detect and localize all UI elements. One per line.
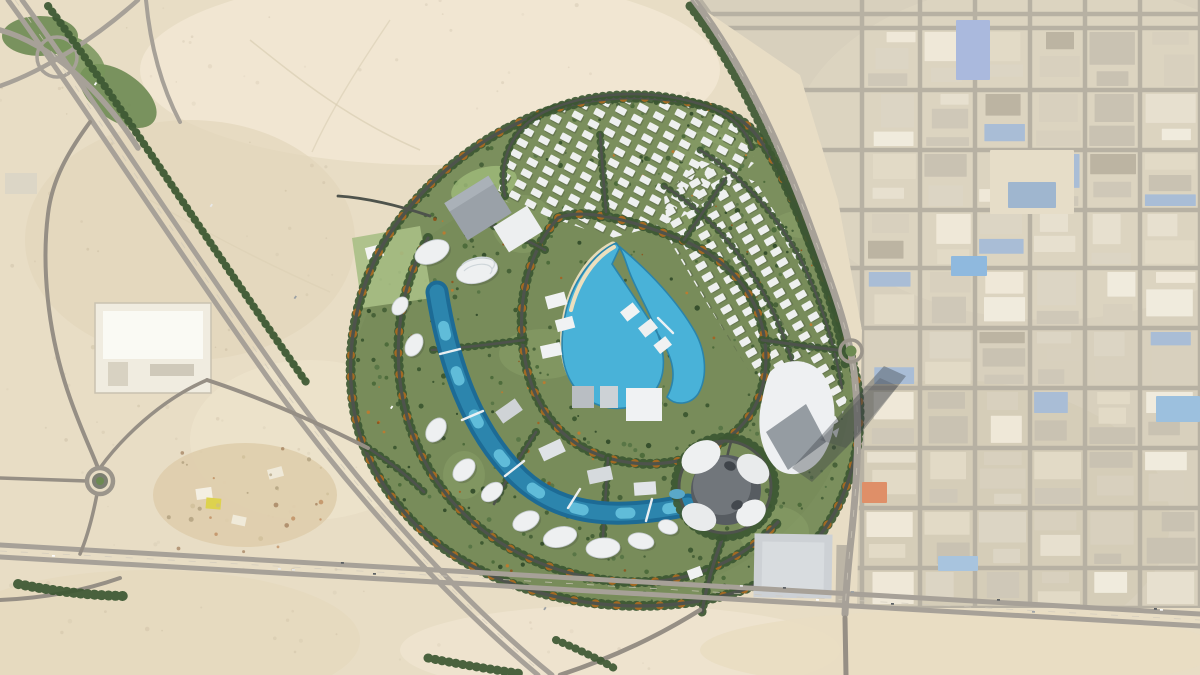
tree (712, 346, 714, 348)
tree (705, 403, 709, 407)
warehouse (1034, 452, 1081, 479)
sand-speck (275, 253, 278, 256)
striped-blue-roof (1008, 182, 1056, 208)
autumn-tree (624, 569, 627, 572)
warehouse (1146, 94, 1196, 123)
tree (385, 376, 389, 380)
debris (319, 518, 321, 520)
tree (488, 354, 491, 357)
tree (486, 146, 490, 150)
warehouse (1107, 272, 1135, 297)
warehouse (1097, 392, 1130, 404)
tree (662, 476, 667, 481)
tree (470, 489, 475, 494)
sand-speck (6, 388, 8, 390)
warehouse (1040, 56, 1080, 77)
tree (468, 507, 471, 510)
tree (622, 442, 627, 447)
tree (691, 430, 695, 434)
debris (167, 515, 171, 519)
debris (269, 473, 272, 476)
plaza-pool (669, 489, 685, 499)
sand-speck (126, 27, 128, 29)
autumn-tree (378, 386, 380, 388)
warehouse (873, 188, 904, 199)
sand-speck (153, 542, 157, 546)
tree (644, 570, 649, 575)
tree (442, 382, 445, 385)
sand-speck (81, 471, 84, 474)
sand-speck (246, 235, 248, 237)
sand-speck (648, 667, 651, 670)
autumn-tree (383, 431, 386, 434)
tree (595, 431, 597, 433)
warehouse (1093, 182, 1131, 198)
debris (182, 461, 185, 464)
sand-speck (529, 621, 532, 624)
warehouse (1090, 154, 1136, 174)
sand-speck (333, 591, 337, 595)
vehicle (783, 587, 786, 589)
debris (198, 507, 202, 511)
tree (547, 374, 549, 376)
warehouse (1037, 311, 1079, 324)
sand-speck (112, 444, 114, 446)
tree (408, 466, 411, 469)
tree (748, 393, 751, 396)
sand-speck (521, 13, 524, 16)
sand-speck (208, 64, 212, 68)
warehouse (925, 362, 970, 384)
warehouse (1148, 422, 1180, 436)
sand-speck (285, 190, 287, 192)
tree (664, 403, 668, 407)
tree (522, 244, 527, 249)
warehouse (979, 512, 1026, 543)
tree (491, 560, 494, 563)
tree (578, 527, 582, 531)
warehouse (1035, 420, 1067, 440)
sand-speck (304, 66, 306, 68)
sand-speck (216, 417, 220, 421)
debris (189, 517, 194, 522)
vehicle (997, 599, 1000, 601)
warehouse (867, 512, 913, 537)
sand-speck (104, 610, 107, 613)
warehouse (1145, 194, 1196, 206)
tree (545, 510, 549, 514)
warehouse (887, 32, 916, 42)
tree (606, 440, 611, 445)
debris (242, 455, 245, 458)
debris (307, 457, 311, 461)
tree (718, 426, 723, 431)
warehouse (881, 94, 914, 128)
debris (284, 523, 289, 528)
sand-speck (363, 591, 365, 593)
sand-speck (182, 40, 185, 43)
tree (463, 243, 468, 248)
tree (371, 313, 376, 318)
tree (801, 507, 803, 509)
warehouse (986, 94, 1021, 116)
warehouse (1037, 272, 1076, 305)
warehouse (994, 494, 1021, 504)
autumn-tree (451, 289, 454, 292)
vehicle (278, 568, 281, 570)
debris (190, 504, 195, 509)
tree (692, 555, 695, 558)
autumn-tree (685, 292, 688, 295)
sand-speck (288, 227, 291, 230)
tree (577, 415, 579, 417)
warehouse (980, 469, 1026, 489)
warehouse (1103, 304, 1133, 324)
warehouse (1035, 488, 1081, 504)
debris (247, 492, 249, 494)
tree (387, 478, 389, 480)
warehouse (930, 452, 966, 479)
warehouse (1146, 289, 1193, 316)
sand-speck (215, 347, 217, 349)
debris (258, 536, 263, 541)
sand-speck (331, 274, 333, 276)
tree (725, 526, 729, 530)
sand-speck (137, 405, 140, 408)
tree (398, 483, 402, 487)
vehicle (52, 555, 55, 557)
sand-speck (189, 41, 192, 44)
debris (281, 447, 284, 450)
vehicle (816, 599, 819, 601)
autumn-tree (443, 231, 446, 234)
tree (403, 498, 406, 501)
autumn-tree (510, 569, 513, 572)
vehicle (341, 562, 344, 564)
warehouse (984, 124, 1025, 141)
event-hall (626, 388, 662, 421)
warehouse (1164, 54, 1194, 86)
tree (457, 318, 459, 320)
tree (693, 580, 695, 582)
debris (291, 516, 295, 520)
tree (628, 443, 632, 447)
sand-speck (249, 142, 251, 144)
sand-speck (310, 164, 314, 168)
warehouse (1092, 253, 1131, 264)
tree (470, 238, 474, 242)
warehouse (1156, 272, 1195, 283)
warehouse (1162, 129, 1191, 140)
tree (550, 235, 553, 238)
autumn-tree (367, 411, 370, 414)
warehouse (876, 48, 909, 69)
tree (587, 441, 590, 444)
sand-speck (530, 628, 532, 630)
sand-speck (9, 583, 14, 588)
warehouse (1040, 214, 1068, 232)
sand-speck (268, 16, 270, 18)
warehouse (928, 392, 965, 409)
warehouse (1037, 332, 1071, 344)
autumn-tree (713, 337, 716, 340)
sand-speck (425, 3, 428, 6)
tree (476, 314, 478, 316)
warehouse (1148, 214, 1178, 236)
debris (177, 547, 181, 551)
warehouse (926, 137, 969, 146)
warehouse (1149, 175, 1192, 191)
warehouse (1152, 32, 1188, 45)
autumn-tree (377, 421, 380, 424)
sand-speck (449, 29, 452, 32)
tree (643, 555, 645, 557)
debris (216, 503, 220, 507)
tree (491, 410, 494, 413)
satellite-map (0, 0, 1200, 675)
warehouse (868, 241, 904, 259)
warehouse (1151, 332, 1191, 345)
sand-speck (325, 237, 327, 239)
tree (695, 305, 700, 310)
sand-speck (96, 421, 98, 423)
autumn-tree (537, 422, 539, 424)
sand-speck (221, 419, 223, 421)
arc-building (634, 481, 657, 496)
warehouse (930, 332, 971, 358)
sand-speck (294, 651, 297, 654)
tree (371, 358, 375, 362)
warehouse (1042, 572, 1069, 583)
tree (779, 505, 783, 509)
autumn-tree (433, 217, 437, 221)
warehouse (930, 489, 958, 503)
sand-speck (686, 92, 690, 96)
sand-speck (86, 248, 89, 251)
sand-speck (228, 329, 231, 332)
tree (749, 429, 751, 431)
tree (491, 402, 495, 406)
sand-speck (575, 3, 579, 7)
tree (590, 534, 594, 538)
tree (417, 367, 421, 371)
warehouse (1145, 240, 1194, 263)
tree (496, 252, 500, 256)
tree (617, 495, 622, 500)
tree (798, 503, 802, 507)
tree (462, 443, 465, 446)
sand-speck (97, 250, 99, 252)
sand-speck (60, 631, 63, 634)
tree (490, 146, 494, 150)
debris (319, 500, 324, 505)
tree (577, 241, 581, 245)
tree (763, 181, 765, 183)
tree (367, 309, 371, 313)
tree (513, 495, 516, 498)
autumn-tree (577, 432, 580, 435)
warehouse (873, 154, 916, 179)
autumn-tree (592, 458, 594, 460)
warehouse (980, 214, 1022, 234)
sand-speck (547, 651, 550, 654)
sand-speck (191, 35, 194, 38)
warehouse (872, 214, 909, 233)
sand-speck (107, 506, 109, 508)
warehouse (869, 544, 905, 558)
tree (583, 437, 586, 440)
warehouse (1090, 512, 1133, 545)
debris (213, 477, 215, 479)
tree (830, 477, 834, 481)
sand-speck (501, 81, 504, 84)
autumn-tree (459, 491, 461, 493)
sand-speck (162, 7, 164, 9)
warehouse (979, 239, 1024, 254)
tree (633, 251, 635, 253)
orange-building (862, 482, 887, 503)
vehicle (851, 591, 854, 593)
event-building-top (762, 541, 825, 590)
sand-speck (437, 643, 441, 647)
warehouse (1095, 360, 1135, 382)
tree (633, 448, 637, 452)
warehouse (872, 428, 914, 444)
tree (499, 381, 503, 385)
warehouse (1097, 476, 1134, 496)
tree (533, 348, 536, 351)
sand-speck (297, 448, 300, 451)
tree (374, 365, 379, 370)
warehouse (1090, 452, 1133, 468)
warehouse (926, 572, 954, 600)
autumn-tree (501, 391, 503, 393)
autumn-tree (451, 281, 453, 283)
warehouse (936, 214, 970, 244)
warehouse (1094, 554, 1121, 564)
tree (572, 416, 577, 421)
sand-speck (161, 630, 163, 632)
tree (432, 381, 434, 383)
tree (791, 230, 793, 232)
aerial-scene (0, 0, 1200, 675)
sand-speck (61, 87, 63, 89)
warehouse (867, 452, 916, 463)
tree (419, 404, 424, 409)
autumn-tree (642, 254, 644, 256)
sand-speck (165, 405, 169, 409)
tree (468, 545, 472, 549)
sand-speck (324, 165, 327, 168)
warehouse (1145, 154, 1196, 170)
warehouse (1034, 236, 1075, 252)
sand-speck (256, 81, 260, 85)
warehouse (1089, 427, 1135, 444)
warehouse (984, 297, 1025, 321)
tree (453, 295, 458, 300)
warehouse (874, 294, 914, 324)
tree (521, 563, 525, 567)
autumn-tree (442, 220, 444, 222)
tree (683, 412, 688, 417)
warehouse (928, 185, 963, 206)
warehouse (1093, 214, 1121, 244)
sand-speck (286, 619, 289, 622)
warehouse (1034, 512, 1076, 530)
debris (186, 464, 188, 466)
sand-speck (358, 68, 361, 71)
sand-speck (102, 431, 105, 434)
tree (620, 555, 624, 559)
sand-speck (113, 544, 115, 546)
blue-roof-row-east (1156, 396, 1200, 422)
warehouse (924, 154, 966, 177)
tree (832, 462, 837, 467)
vehicle (1032, 611, 1035, 613)
tree (361, 339, 364, 342)
warehouse (987, 392, 1018, 410)
warehouse (1147, 538, 1196, 564)
sand-speck (496, 90, 498, 92)
debris (209, 516, 212, 519)
sand-speck (176, 81, 178, 83)
sand-speck (45, 427, 47, 429)
tree (443, 509, 447, 513)
warehouse (1038, 369, 1064, 384)
warehouse (983, 348, 1026, 366)
sand-speck (64, 438, 68, 442)
sand-speck (508, 71, 511, 74)
warehouse-roof (103, 311, 203, 359)
warehouse (980, 332, 1025, 343)
sand-speck (299, 639, 303, 643)
tree (572, 552, 576, 556)
tree (479, 162, 484, 167)
sand-speck (399, 658, 401, 660)
debris (274, 503, 279, 508)
tree (670, 277, 673, 280)
debris (277, 546, 280, 549)
tree (849, 400, 852, 403)
sand-speck (66, 113, 68, 115)
tree (539, 372, 541, 374)
warehouse (1034, 392, 1068, 413)
tree (782, 502, 785, 505)
tree (825, 486, 827, 488)
debris (326, 493, 329, 496)
sand-speck (356, 467, 358, 469)
sand-speck (336, 633, 338, 635)
sand-speck (322, 181, 325, 184)
tree (579, 260, 582, 263)
autumn-tree (560, 277, 562, 279)
tree (456, 287, 459, 290)
autumn-tree (543, 381, 546, 384)
sand-speck (225, 348, 228, 351)
autumn-tree (518, 361, 520, 363)
debris (315, 503, 318, 506)
warehouse (1149, 474, 1184, 502)
tree (765, 488, 770, 493)
tree (640, 453, 645, 458)
vehicle (292, 569, 295, 571)
roundabout-green (846, 346, 857, 357)
sand-speck (80, 220, 83, 223)
warehouse (1152, 350, 1194, 384)
tree (529, 535, 533, 539)
vehicle (891, 603, 894, 605)
warehouse (991, 416, 1022, 443)
